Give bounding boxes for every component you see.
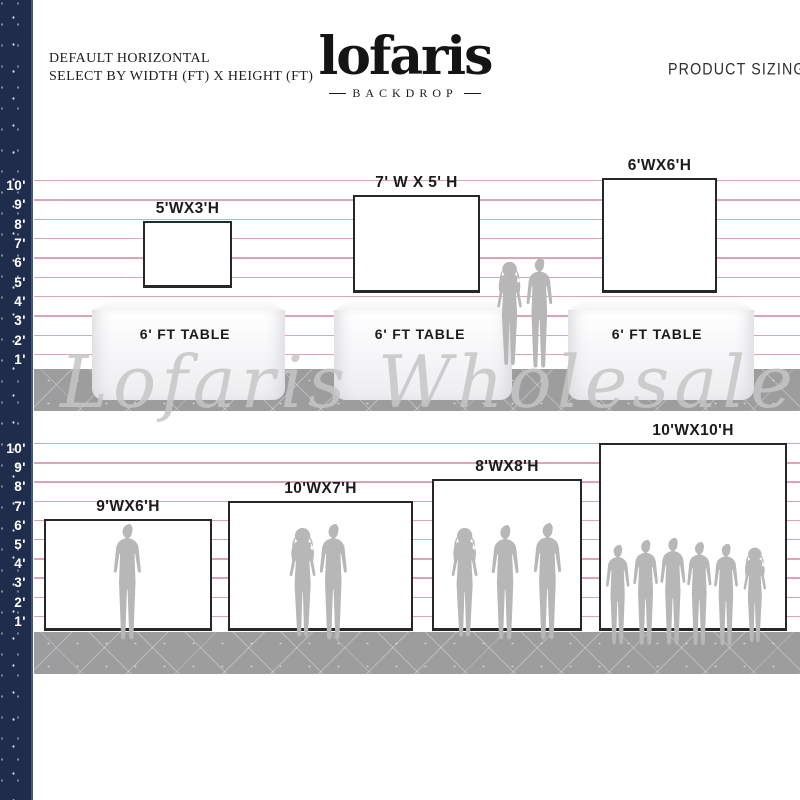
backdrop-rectangle — [143, 221, 232, 288]
man-silhouette-icon — [521, 256, 563, 371]
ruler-scale-label: 9' — [0, 197, 26, 213]
table-size-label: 6' FT TABLE — [612, 326, 702, 342]
ruler-scale-label: 1' — [0, 352, 26, 368]
people-silhouette-single — [108, 522, 152, 643]
backdrop-size-label: 8'WX8'H — [475, 458, 539, 476]
ruler-scale-label: 2' — [0, 333, 26, 349]
ruler-scale-label: 7' — [0, 236, 26, 252]
banquet-table — [332, 298, 514, 400]
backdrop-size-label: 7' W X 5' H — [375, 174, 457, 192]
ruler-scale-label: 7' — [0, 499, 26, 515]
ruler-scale-label: 10' — [0, 178, 26, 194]
brand-logo: lofaris BACKDROP — [310, 30, 500, 101]
ruler-strip — [0, 0, 33, 800]
logo-dash-right — [464, 93, 481, 95]
people-silhouette-couple — [281, 522, 359, 643]
man-silhouette-icon — [528, 521, 573, 643]
ruler-scale-label: 5' — [0, 537, 26, 553]
ruler-scale-label: 3' — [0, 575, 26, 591]
ruler-scale-label: 6' — [0, 518, 26, 534]
tablecloth-skirt — [334, 310, 512, 400]
ruler-scale-label: 6' — [0, 255, 26, 271]
man-silhouette-icon — [108, 522, 152, 643]
brand-logo-subline: BACKDROP — [310, 86, 500, 101]
table-size-label: 6' FT TABLE — [140, 326, 230, 342]
table-size-label: 6' FT TABLE — [375, 326, 465, 342]
people-silhouette-six — [601, 536, 777, 648]
ruler-scale-label: 1' — [0, 614, 26, 630]
backdrop-size-label: 10'WX10'H — [652, 422, 734, 440]
header-subtitle: DEFAULT HORIZONTAL SELECT BY WIDTH (FT) … — [49, 50, 313, 85]
ruler-scale-label: 2' — [0, 595, 26, 611]
backdrop-size-label: 9'WX6'H — [96, 498, 160, 516]
ruler-scale-label: 9' — [0, 460, 26, 476]
ruler-scale-label: 5' — [0, 275, 26, 291]
brand-logo-wordmark: lofaris — [310, 30, 500, 84]
product-sizing-page: DEFAULT HORIZONTAL SELECT BY WIDTH (FT) … — [0, 0, 800, 800]
logo-dash-left — [329, 93, 346, 95]
ruler-scale-label: 10' — [0, 441, 26, 457]
brand-logo-subtext: BACKDROP — [352, 86, 457, 101]
backdrop-rectangle — [602, 178, 717, 293]
man-silhouette-icon — [486, 523, 530, 643]
backdrop-rectangle — [353, 195, 480, 293]
ruler-scale-label: 8' — [0, 479, 26, 495]
man-silhouette-icon — [314, 522, 358, 643]
woman-silhouette-icon — [736, 545, 774, 648]
ruler-scale-label: 4' — [0, 556, 26, 572]
backdrop-size-label: 6'WX6'H — [628, 157, 692, 175]
ruler-scale-label: 4' — [0, 294, 26, 310]
tablecloth-skirt — [92, 310, 285, 400]
banquet-table — [566, 298, 756, 400]
people-silhouette-trio — [443, 521, 573, 643]
header-subtitle-line2: SELECT BY WIDTH (FT) X HEIGHT (FT) — [49, 68, 313, 86]
woman-silhouette-icon — [443, 525, 486, 643]
header-subtitle-line1: DEFAULT HORIZONTAL — [49, 50, 313, 68]
tablecloth-skirt — [568, 310, 754, 400]
ruler-scale-label: 3' — [0, 313, 26, 329]
backdrop-size-label: 5'WX3'H — [156, 200, 220, 218]
ruler-scale-label: 8' — [0, 217, 26, 233]
backdrop-size-label: 10'WX7'H — [284, 480, 357, 498]
people-silhouette-couple — [489, 256, 563, 371]
banquet-table — [90, 298, 287, 400]
page-title: PRODUCT SIZING — [668, 60, 782, 79]
